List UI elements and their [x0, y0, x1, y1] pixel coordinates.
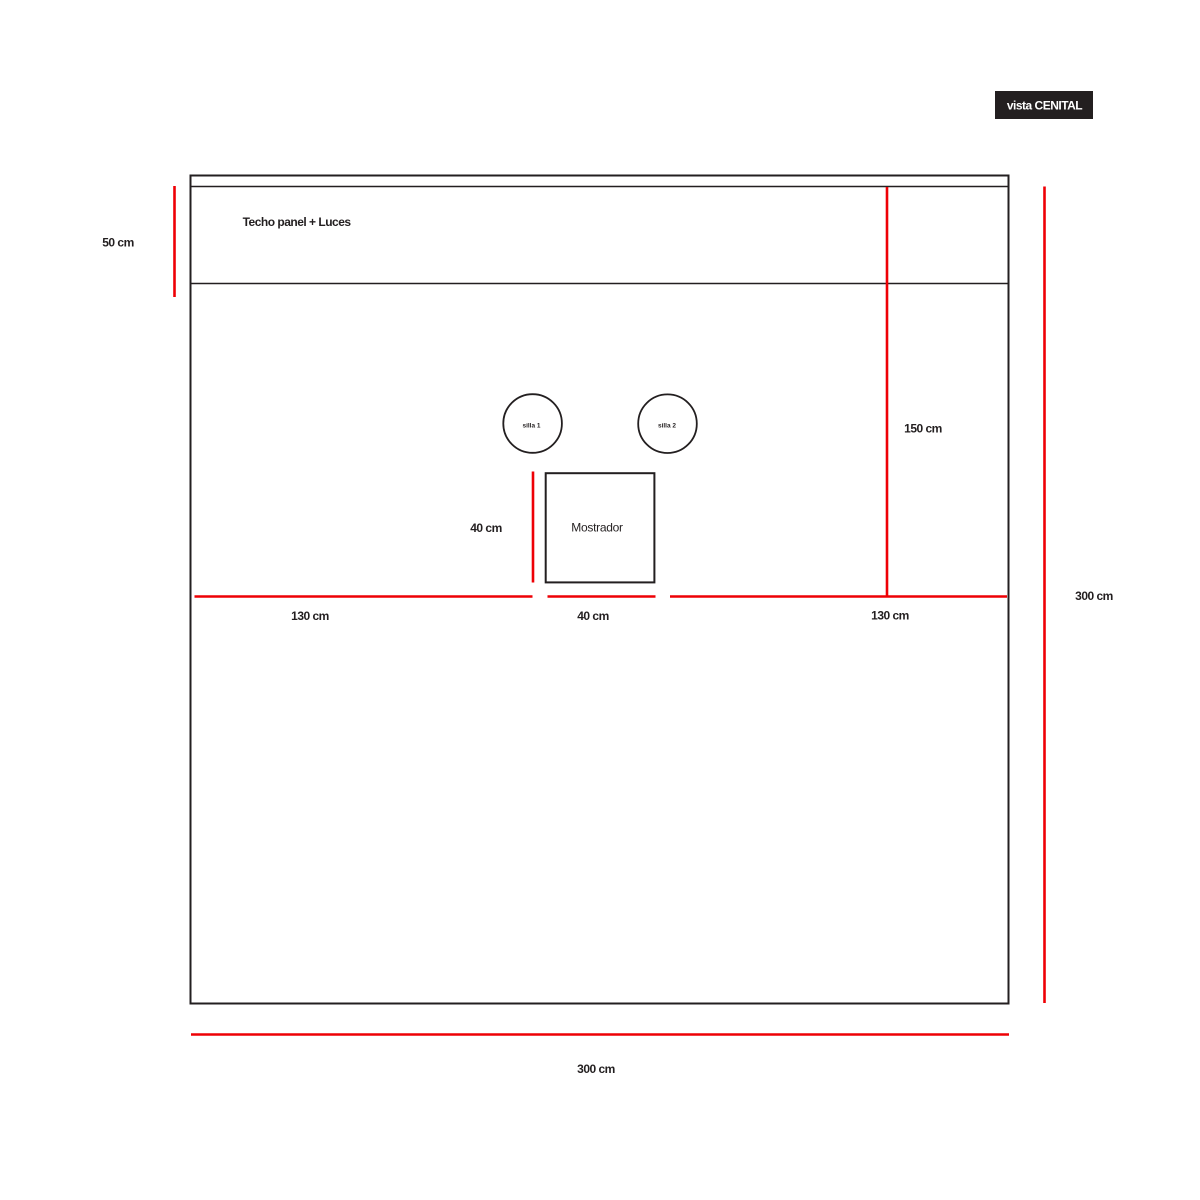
svg-text:300 cm: 300 cm: [1075, 589, 1113, 603]
svg-text:vista CENITAL: vista CENITAL: [1007, 99, 1082, 113]
svg-text:Techo panel + Luces: Techo panel + Luces: [243, 215, 352, 229]
svg-text:150 cm: 150 cm: [904, 421, 942, 435]
svg-text:Mostrador: Mostrador: [571, 521, 623, 535]
svg-text:silla 2: silla 2: [658, 422, 676, 429]
svg-text:40 cm: 40 cm: [577, 609, 609, 623]
svg-text:130 cm: 130 cm: [291, 609, 329, 623]
svg-text:300 cm: 300 cm: [577, 1062, 615, 1076]
svg-text:130 cm: 130 cm: [871, 609, 909, 623]
svg-text:silla 1: silla 1: [522, 422, 540, 429]
svg-text:50 cm: 50 cm: [102, 235, 134, 249]
svg-text:40 cm: 40 cm: [470, 521, 502, 535]
